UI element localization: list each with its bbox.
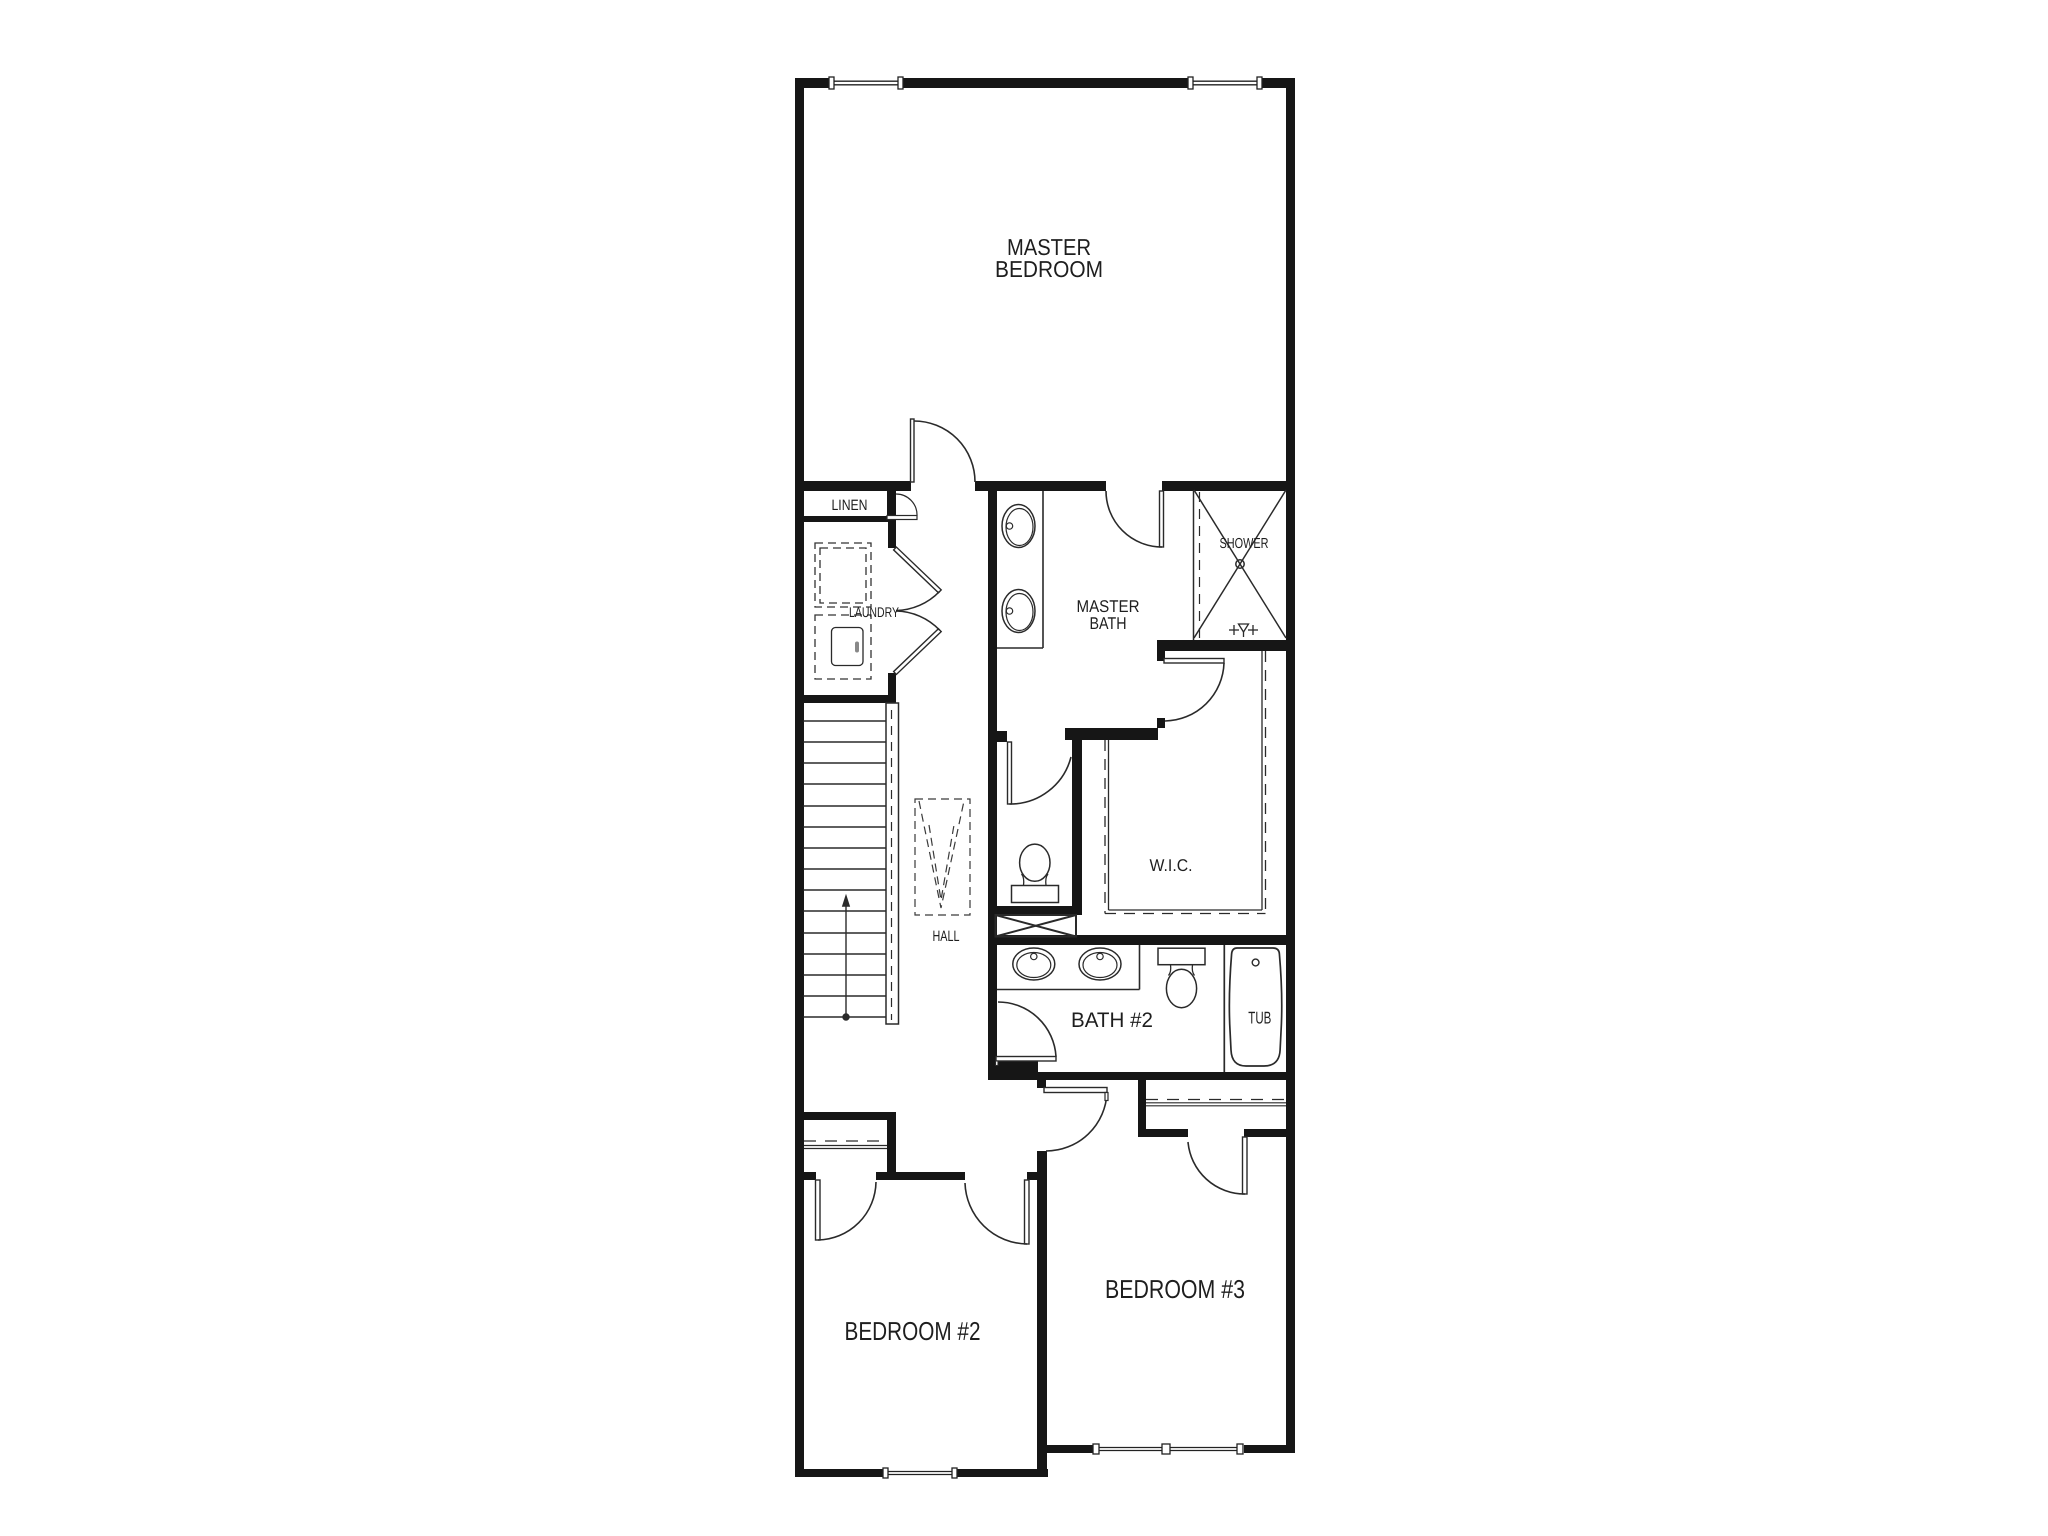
svg-text:TUB: TUB [1248, 1009, 1271, 1028]
svg-text:BEDROOM #3: BEDROOM #3 [1105, 1274, 1245, 1304]
svg-text:BEDROOM: BEDROOM [995, 256, 1103, 282]
svg-text:SHOWER: SHOWER [1220, 536, 1269, 552]
svg-text:HALL: HALL [933, 928, 960, 945]
svg-text:BATH: BATH [1090, 614, 1127, 633]
svg-text:LAUNDRY: LAUNDRY [849, 604, 899, 620]
svg-text:W.I.C.: W.I.C. [1150, 856, 1193, 875]
svg-text:BATH #2: BATH #2 [1071, 1009, 1153, 1032]
svg-text:BEDROOM #2: BEDROOM #2 [845, 1316, 981, 1346]
svg-text:LINEN: LINEN [832, 497, 868, 514]
